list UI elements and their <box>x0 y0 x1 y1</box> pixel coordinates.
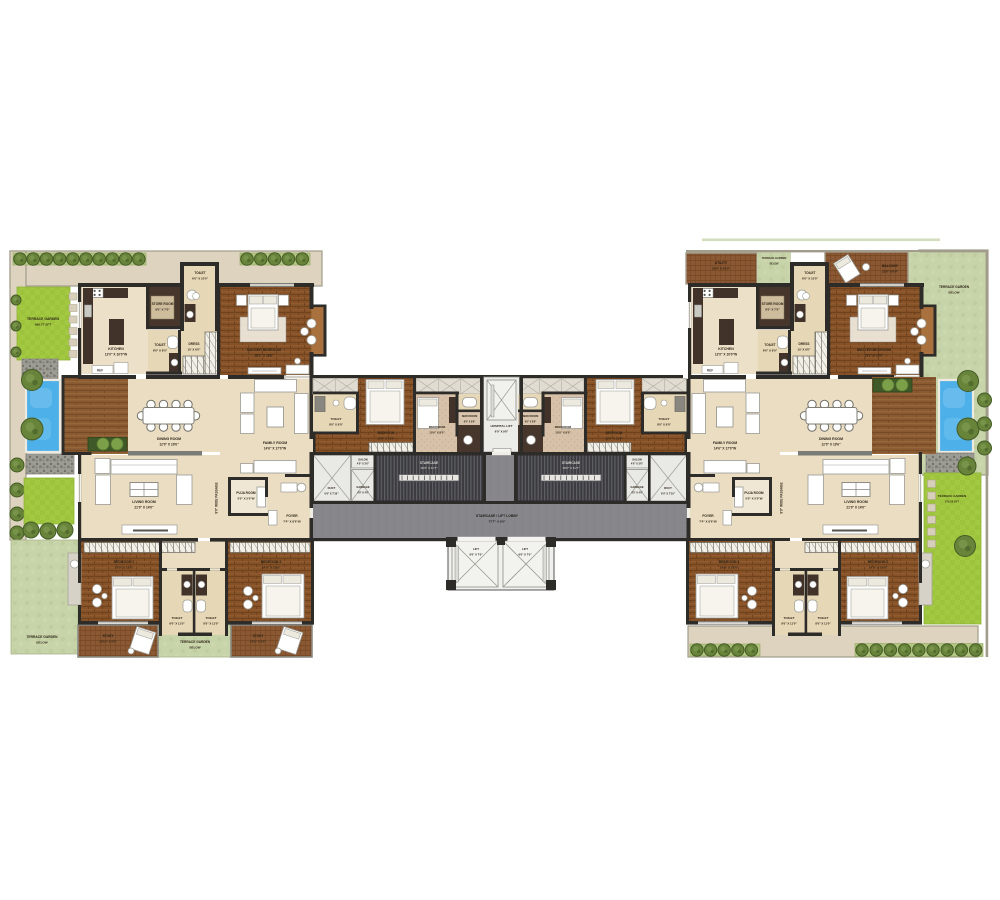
svg-text:BELOW: BELOW <box>949 290 960 294</box>
svg-text:4'0" X 3'0": 4'0" X 3'0" <box>631 463 644 466</box>
svg-text:8'0" X 11'0": 8'0" X 11'0" <box>203 621 219 625</box>
svg-text:KITCHEN: KITCHEN <box>718 347 734 351</box>
svg-text:BEDROOM 2: BEDROOM 2 <box>114 560 135 564</box>
svg-text:DUCT: DUCT <box>664 486 672 490</box>
svg-text:8'0" X 7'0": 8'0" X 7'0" <box>519 552 533 556</box>
svg-text:5'0" X 5'0"W: 5'0" X 5'0"W <box>745 496 762 500</box>
svg-text:BEDROOM 3: BEDROOM 3 <box>719 560 740 564</box>
svg-text:LIFT: LIFT <box>473 547 479 551</box>
svg-text:14'6" X 17'0"W: 14'6" X 17'0"W <box>714 446 737 450</box>
svg-text:10'0" X 8'0": 10'0" X 8'0" <box>429 430 445 434</box>
svg-text:8'0" X 11'0": 8'0" X 11'0" <box>781 621 797 625</box>
svg-text:STUDY: STUDY <box>103 634 115 638</box>
svg-text:6'6" X 8'0": 6'6" X 8'0" <box>153 348 168 352</box>
svg-text:9'0" WIDE PASSAGE: 9'0" WIDE PASSAGE <box>780 482 784 513</box>
svg-text:12'0" X 10'0"W: 12'0" X 10'0"W <box>715 352 738 356</box>
svg-text:BALCONY: BALCONY <box>882 264 899 268</box>
svg-text:6'0" X 9'0": 6'0" X 9'0" <box>495 429 509 433</box>
svg-text:BEDROOM: BEDROOM <box>606 431 623 435</box>
svg-text:TOILET: TOILET <box>659 417 670 421</box>
svg-text:4'0" X 3'0": 4'0" X 3'0" <box>357 463 370 466</box>
svg-text:14'0" X 16'0": 14'0" X 16'0" <box>262 565 281 569</box>
svg-text:15'2" X 18'0": 15'2" X 18'0" <box>864 353 884 357</box>
svg-text:BEDROOM 3: BEDROOM 3 <box>261 560 282 564</box>
svg-text:TOILET: TOILET <box>206 616 217 620</box>
svg-text:STORE ROOM: STORE ROOM <box>152 302 174 306</box>
svg-text:TERRACE GARDEN: TERRACE GARDEN <box>762 256 787 260</box>
svg-text:14'6" X 17'0"W: 14'6" X 17'0"W <box>264 446 287 450</box>
svg-text:SERV.ROOM: SERV.ROOM <box>462 414 478 418</box>
svg-text:660.77 SFT: 660.77 SFT <box>35 322 51 326</box>
svg-text:4'0" X 4'0": 4'0" X 4'0" <box>631 491 643 494</box>
svg-text:REF: REF <box>707 369 713 373</box>
svg-text:6'0" X 10'0": 6'0" X 10'0" <box>192 276 209 280</box>
svg-text:DUCT: DUCT <box>328 486 336 490</box>
svg-text:8'0" X 7'0": 8'0" X 7'0" <box>155 307 170 311</box>
svg-text:18'0" X 11'7": 18'0" X 11'7" <box>562 466 580 470</box>
svg-text:FOYER: FOYER <box>286 514 298 518</box>
svg-text:10'0" X 11'0": 10'0" X 11'0" <box>605 436 623 440</box>
svg-text:9'0" WIDE PASSAGE: 9'0" WIDE PASSAGE <box>215 482 219 513</box>
svg-text:TOILET: TOILET <box>818 616 829 620</box>
svg-text:TERRACE GARDEN: TERRACE GARDEN <box>938 494 966 498</box>
svg-text:BELOW: BELOW <box>36 640 47 644</box>
svg-text:7'4" X 8'6"W: 7'4" X 8'6"W <box>283 519 301 523</box>
svg-text:14'0" X 16'0": 14'0" X 16'0" <box>115 565 134 569</box>
svg-text:10'0" X 11'0": 10'0" X 11'0" <box>377 436 395 440</box>
svg-text:TOILET: TOILET <box>784 616 795 620</box>
svg-text:TERRACE GARDEN: TERRACE GARDEN <box>26 635 58 639</box>
svg-text:GARBAGE: GARBAGE <box>630 485 644 489</box>
svg-text:14'0" X 16'0": 14'0" X 16'0" <box>720 565 739 569</box>
svg-text:TOILET: TOILET <box>804 271 815 275</box>
svg-text:TOILET: TOILET <box>331 417 342 421</box>
svg-text:BEDROOM: BEDROOM <box>429 425 446 429</box>
svg-text:10'0" X 10'0": 10'0" X 10'0" <box>712 267 731 271</box>
svg-text:6'0" X 10'0": 6'0" X 10'0" <box>802 276 819 280</box>
svg-text:8'0" X 11'0": 8'0" X 11'0" <box>169 621 185 625</box>
svg-text:4'0" X 4'0": 4'0" X 4'0" <box>357 491 369 494</box>
svg-text:LIVING ROOM: LIVING ROOM <box>132 500 156 504</box>
svg-text:LIFT: LIFT <box>522 547 528 551</box>
svg-text:8'0" X 6'0": 8'0" X 6'0" <box>329 422 344 426</box>
svg-text:12'0" X 19'6": 12'0" X 19'6" <box>159 442 179 446</box>
svg-text:18'0" X 11'7": 18'0" X 11'7" <box>420 466 438 470</box>
svg-text:STUDY: STUDY <box>253 634 265 638</box>
svg-text:REF: REF <box>97 369 103 373</box>
svg-text:TERRACE GARDEN: TERRACE GARDEN <box>180 640 211 644</box>
svg-text:6'0" X 7'10": 6'0" X 7'10" <box>661 491 676 495</box>
svg-text:PUJA ROOM: PUJA ROOM <box>744 491 764 495</box>
svg-text:DINING ROOM: DINING ROOM <box>157 437 181 441</box>
svg-text:TOILET: TOILET <box>194 271 205 275</box>
svg-text:12'0" X 19'6": 12'0" X 19'6" <box>821 442 841 446</box>
svg-text:DINING ROOM: DINING ROOM <box>819 437 843 441</box>
svg-text:10'0" X 8'0": 10'0" X 8'0" <box>555 430 571 434</box>
svg-text:21'0" X 14'0": 21'0" X 14'0" <box>134 505 154 509</box>
svg-text:5'0" X 5'0"W: 5'0" X 5'0"W <box>237 496 254 500</box>
svg-text:TERRACE GARDEN: TERRACE GARDEN <box>939 285 970 289</box>
svg-text:FAMILY ROOM: FAMILY ROOM <box>713 441 737 445</box>
svg-text:DRESS: DRESS <box>189 342 200 346</box>
svg-text:BEDROOM 2: BEDROOM 2 <box>868 560 889 564</box>
svg-text:6'0" X 8'6": 6'0" X 8'6" <box>525 420 537 423</box>
svg-text:8'0" X 7'0": 8'0" X 7'0" <box>470 552 484 556</box>
svg-text:SALON: SALON <box>632 458 641 462</box>
svg-text:8'0" X 11'0": 8'0" X 11'0" <box>815 621 831 625</box>
svg-text:BELOW: BELOW <box>190 645 201 649</box>
svg-text:TOILET: TOILET <box>172 616 183 620</box>
svg-text:10' X 6'0": 10' X 6'0" <box>188 347 202 351</box>
svg-text:8'0" X 6'0": 8'0" X 6'0" <box>657 422 672 426</box>
svg-text:14'0" X 16'0": 14'0" X 16'0" <box>869 565 888 569</box>
svg-text:MASTER BEDROOM: MASTER BEDROOM <box>857 348 891 352</box>
svg-text:UTILITY: UTILITY <box>715 261 728 265</box>
svg-text:TERRACE GARDEN: TERRACE GARDEN <box>27 317 60 321</box>
svg-text:DRESS: DRESS <box>799 342 810 346</box>
svg-text:STORE ROOM: STORE ROOM <box>762 302 784 306</box>
svg-text:21'0" X 14'0": 21'0" X 14'0" <box>846 505 866 509</box>
svg-text:270.25 SFT: 270.25 SFT <box>945 499 960 503</box>
svg-text:TOILET: TOILET <box>764 343 775 347</box>
svg-text:12'0" X 10'0"W: 12'0" X 10'0"W <box>105 352 128 356</box>
svg-text:10' X 6'0": 10' X 6'0" <box>798 347 812 351</box>
svg-text:6'6" X 8'0": 6'6" X 8'0" <box>763 348 778 352</box>
svg-text:12'0" X 6'0": 12'0" X 6'0" <box>882 270 898 274</box>
svg-text:BEDROOM: BEDROOM <box>555 425 572 429</box>
svg-text:STAIRCASE: STAIRCASE <box>562 461 580 465</box>
svg-text:10'0" X 9'0": 10'0" X 9'0" <box>250 639 267 643</box>
svg-text:LIVING ROOM: LIVING ROOM <box>844 500 868 504</box>
svg-text:SERV.ROOM: SERV.ROOM <box>523 414 539 418</box>
svg-text:8'0" X 7'0": 8'0" X 7'0" <box>765 307 780 311</box>
svg-text:FOYER: FOYER <box>702 514 714 518</box>
svg-text:6'0" X 7'10": 6'0" X 7'10" <box>325 491 340 495</box>
svg-text:KITCHEN: KITCHEN <box>108 347 124 351</box>
svg-text:7'4" X 8'6"W: 7'4" X 8'6"W <box>699 519 717 523</box>
svg-text:FAMILY ROOM: FAMILY ROOM <box>263 441 287 445</box>
svg-text:BELOW: BELOW <box>770 262 780 265</box>
svg-text:SALON: SALON <box>358 458 367 462</box>
svg-text:TOILET: TOILET <box>154 343 165 347</box>
svg-text:BEDROOM: BEDROOM <box>378 431 395 435</box>
svg-text:77'7" X 9'0": 77'7" X 9'0" <box>489 520 506 524</box>
svg-text:10'10" X 9'0": 10'10" X 9'0" <box>99 639 117 643</box>
svg-text:GARBAGE: GARBAGE <box>356 485 370 489</box>
svg-text:15'2" X 18'0": 15'2" X 18'0" <box>254 353 274 357</box>
svg-text:HOSPITAL LIFT: HOSPITAL LIFT <box>490 424 512 428</box>
svg-text:PUJA ROOM: PUJA ROOM <box>236 491 256 495</box>
svg-text:STAIRCASE: STAIRCASE <box>420 461 438 465</box>
svg-text:STAIRCASE / LIFT LOBBY: STAIRCASE / LIFT LOBBY <box>476 514 519 518</box>
svg-text:MASTER BEDROOM: MASTER BEDROOM <box>247 348 281 352</box>
svg-text:6'0" X 8'6": 6'0" X 8'6" <box>464 420 476 423</box>
